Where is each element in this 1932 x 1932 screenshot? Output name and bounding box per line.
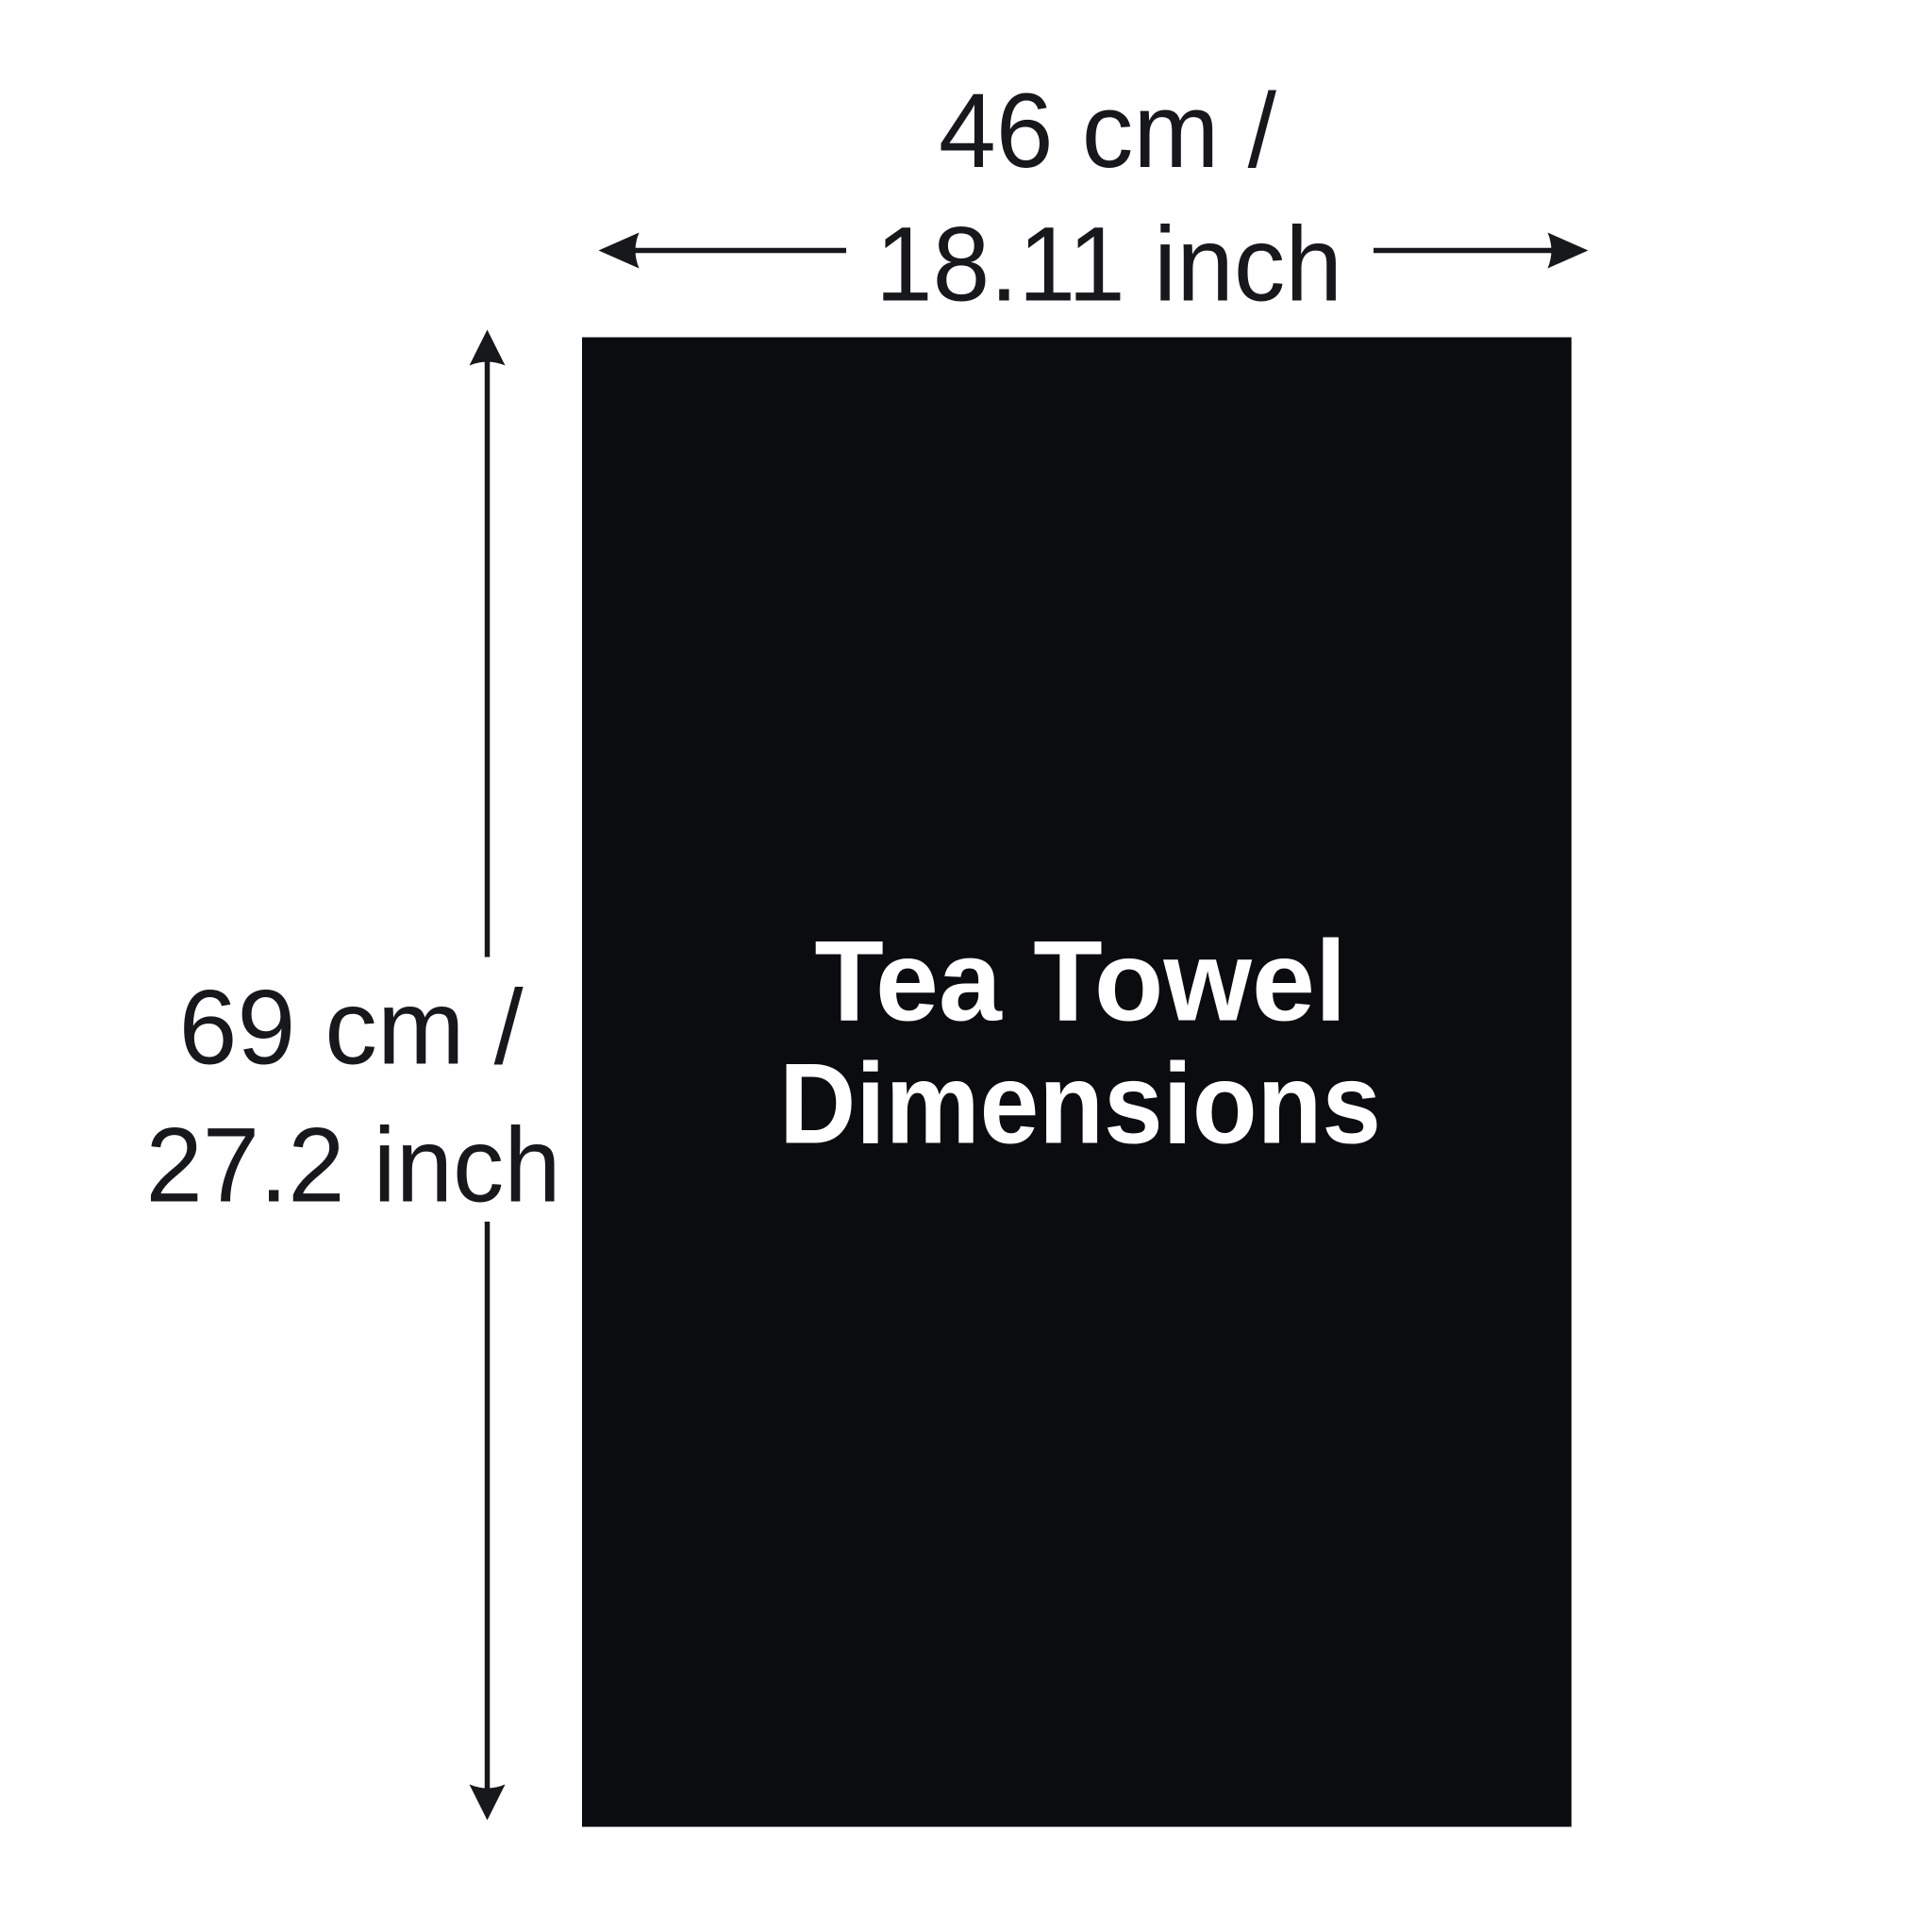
svg-text:Tea Towel: Tea Towel [814, 917, 1346, 1045]
svg-text:46 cm /: 46 cm / [939, 72, 1277, 190]
svg-text:27.2 inch: 27.2 inch [146, 1107, 561, 1224]
svg-text:18.11 inch: 18.11 inch [875, 206, 1342, 324]
svg-text:69 cm /: 69 cm / [179, 969, 525, 1087]
svg-text:Dimensions: Dimensions [779, 1040, 1381, 1168]
